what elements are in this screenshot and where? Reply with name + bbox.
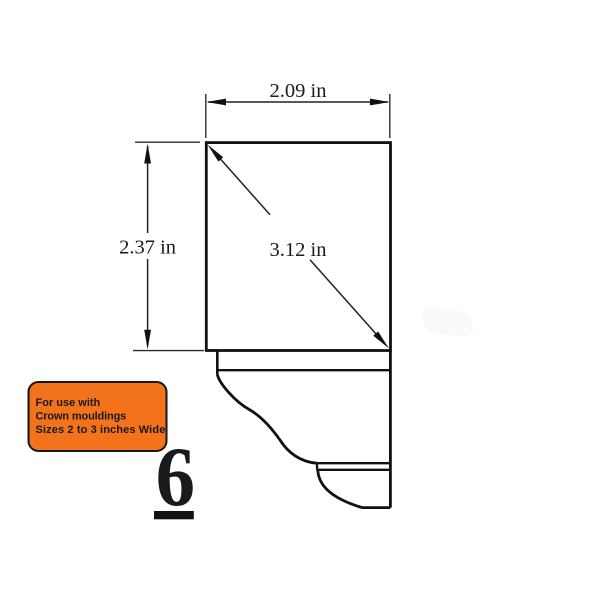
svg-text:3.12 in: 3.12 in: [270, 239, 327, 261]
svg-text:For use with: For use with: [36, 397, 101, 409]
svg-text:2.37 in: 2.37 in: [119, 237, 176, 259]
svg-text:Sizes 2 to 3 inches Wide: Sizes 2 to 3 inches Wide: [36, 424, 166, 436]
svg-text:Crown mouldings: Crown mouldings: [36, 411, 127, 423]
svg-text:6: 6: [156, 429, 195, 523]
svg-text:2.09 in: 2.09 in: [270, 80, 327, 102]
